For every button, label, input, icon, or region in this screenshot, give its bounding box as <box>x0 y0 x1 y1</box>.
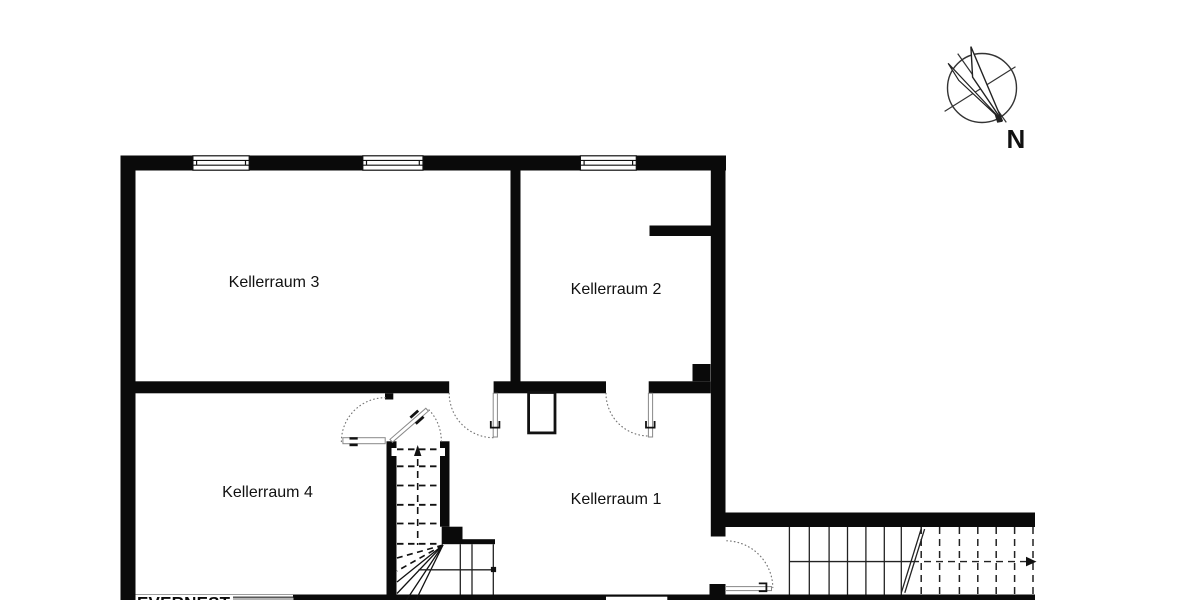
svg-text:N: N <box>1007 124 1026 154</box>
svg-text:Kellerraum 4: Kellerraum 4 <box>222 484 313 501</box>
svg-text:EVERNEST.: EVERNEST. <box>137 594 233 600</box>
svg-text:Kellerraum 1: Kellerraum 1 <box>571 491 662 508</box>
svg-text:Kellerraum 2: Kellerraum 2 <box>571 281 662 298</box>
svg-text:Kellerraum 3: Kellerraum 3 <box>229 274 320 291</box>
